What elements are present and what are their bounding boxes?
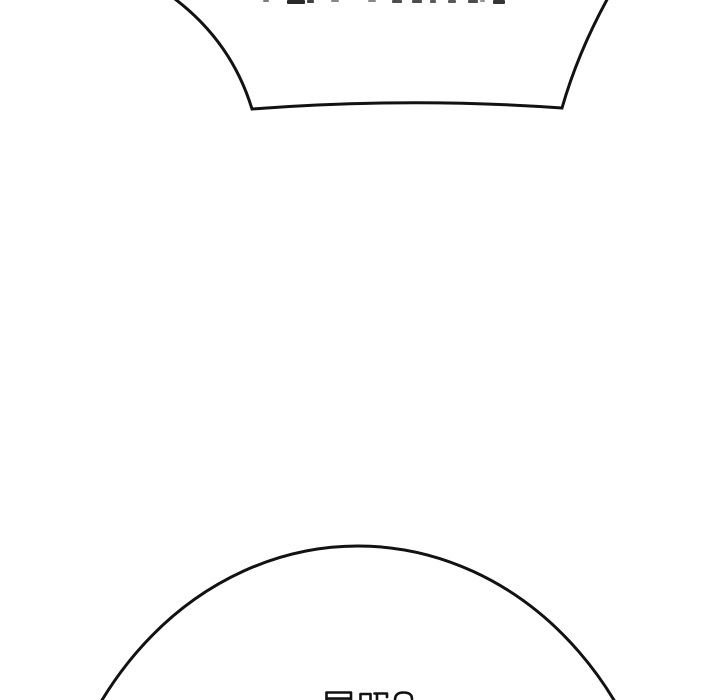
speech-bubble-bottom xyxy=(46,546,670,700)
panel-artwork xyxy=(0,0,720,700)
clipped-text-glyph-tops xyxy=(327,693,413,700)
speech-bubble-top xyxy=(171,0,609,109)
comic-panel: 是吗? xyxy=(0,0,720,700)
